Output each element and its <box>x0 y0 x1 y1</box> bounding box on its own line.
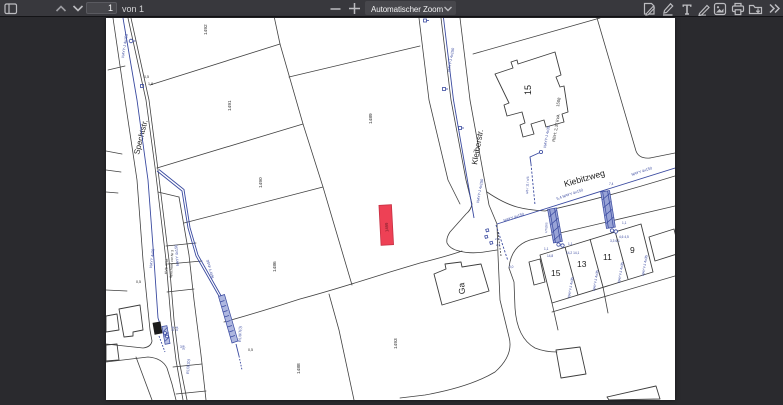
svg-text:R1/9/7(0): R1/9/7(0) <box>238 325 243 342</box>
svg-text:1490: 1490 <box>258 177 264 188</box>
svg-text:1491: 1491 <box>227 100 233 111</box>
svg-text:Kleiberstr.: Kleiberstr. <box>470 129 485 166</box>
svg-text:NAYY 4x150: NAYY 4x150 <box>174 245 180 267</box>
svg-text:2,3: 2,3 <box>495 237 499 241</box>
svg-text:9: 9 <box>630 245 635 255</box>
svg-text:u/6 / 11 / u/6: u/6 / 11 / u/6 <box>525 176 530 194</box>
svg-text:1,8: 1,8 <box>148 82 153 86</box>
svg-text:1,1: 1,1 <box>622 221 627 225</box>
svg-text:1493: 1493 <box>393 338 399 349</box>
svg-text:Spechtstr. vor Nr 3: Spechtstr. vor Nr 3 <box>169 250 174 278</box>
svg-text:NAYY-J 4x35: NAYY-J 4x35 <box>641 255 649 276</box>
svg-text:Spechtstr.: Spechtstr. <box>132 119 149 156</box>
svg-text:1488: 1488 <box>296 363 302 374</box>
svg-text:REH: 2,37 kVA: REH: 2,37 kVA <box>551 114 561 142</box>
svg-text:1492: 1492 <box>203 24 209 35</box>
svg-text:1/7/29/5: 1/7/29/5 <box>544 222 549 233</box>
svg-text:1508: 1508 <box>555 96 562 107</box>
svg-text:NAYY-J 4x150: NAYY-J 4x150 <box>476 179 484 204</box>
svg-text:7,4: 7,4 <box>609 182 614 186</box>
svg-text:3,3 6,1: 3,3 6,1 <box>610 239 620 243</box>
svg-text:NAYY-J 4x35: NAYY-J 4x35 <box>543 126 551 149</box>
svg-text:NAYY-J 4x35: NAYY-J 4x35 <box>617 262 625 283</box>
svg-text:Kiebitzweg: Kiebitzweg <box>563 168 606 189</box>
svg-text:NAYY 4x150: NAYY 4x150 <box>631 166 653 177</box>
svg-text:NAYY 4x150: NAYY 4x150 <box>503 212 525 223</box>
svg-text:14,2 14,1: 14,2 14,1 <box>566 251 580 255</box>
svg-text:0,5: 0,5 <box>136 280 141 284</box>
svg-text:1,1: 1,1 <box>568 242 573 246</box>
svg-text:NAYY-J 4x35: NAYY-J 4x35 <box>592 270 600 291</box>
svg-text:R1/3(1b): R1/3(1b) <box>186 358 191 374</box>
svg-text:1499: 1499 <box>384 222 390 232</box>
svg-text:0,6: 0,6 <box>175 326 179 331</box>
svg-text:NAYY-J 4x150: NAYY-J 4x150 <box>447 48 455 73</box>
svg-text:15: 15 <box>551 268 561 278</box>
svg-text:11: 11 <box>603 252 612 262</box>
svg-text:4,6 4,5: 4,6 4,5 <box>619 235 629 239</box>
svg-text:3,7: 3,7 <box>180 345 185 349</box>
svg-text:14,8: 14,8 <box>547 254 553 258</box>
svg-text:0,5: 0,5 <box>248 348 253 352</box>
svg-text:0,5: 0,5 <box>144 75 149 79</box>
svg-text:NAYY-J 4x35: NAYY-J 4x35 <box>567 277 575 298</box>
svg-text:5,4 NAYY 4x150: 5,4 NAYY 4x150 <box>556 188 584 201</box>
svg-text:1486: 1486 <box>272 261 278 272</box>
svg-text:15: 15 <box>523 85 533 95</box>
svg-text:2,3: 2,3 <box>496 243 500 247</box>
svg-text:13: 13 <box>577 259 587 269</box>
svg-text:1489: 1489 <box>368 113 374 124</box>
svg-text:1,1: 1,1 <box>544 247 549 251</box>
svg-text:0,0: 0,0 <box>509 265 514 269</box>
svg-text:KVS 4718: KVS 4718 <box>164 258 169 274</box>
svg-text:Ga: Ga <box>456 282 467 294</box>
